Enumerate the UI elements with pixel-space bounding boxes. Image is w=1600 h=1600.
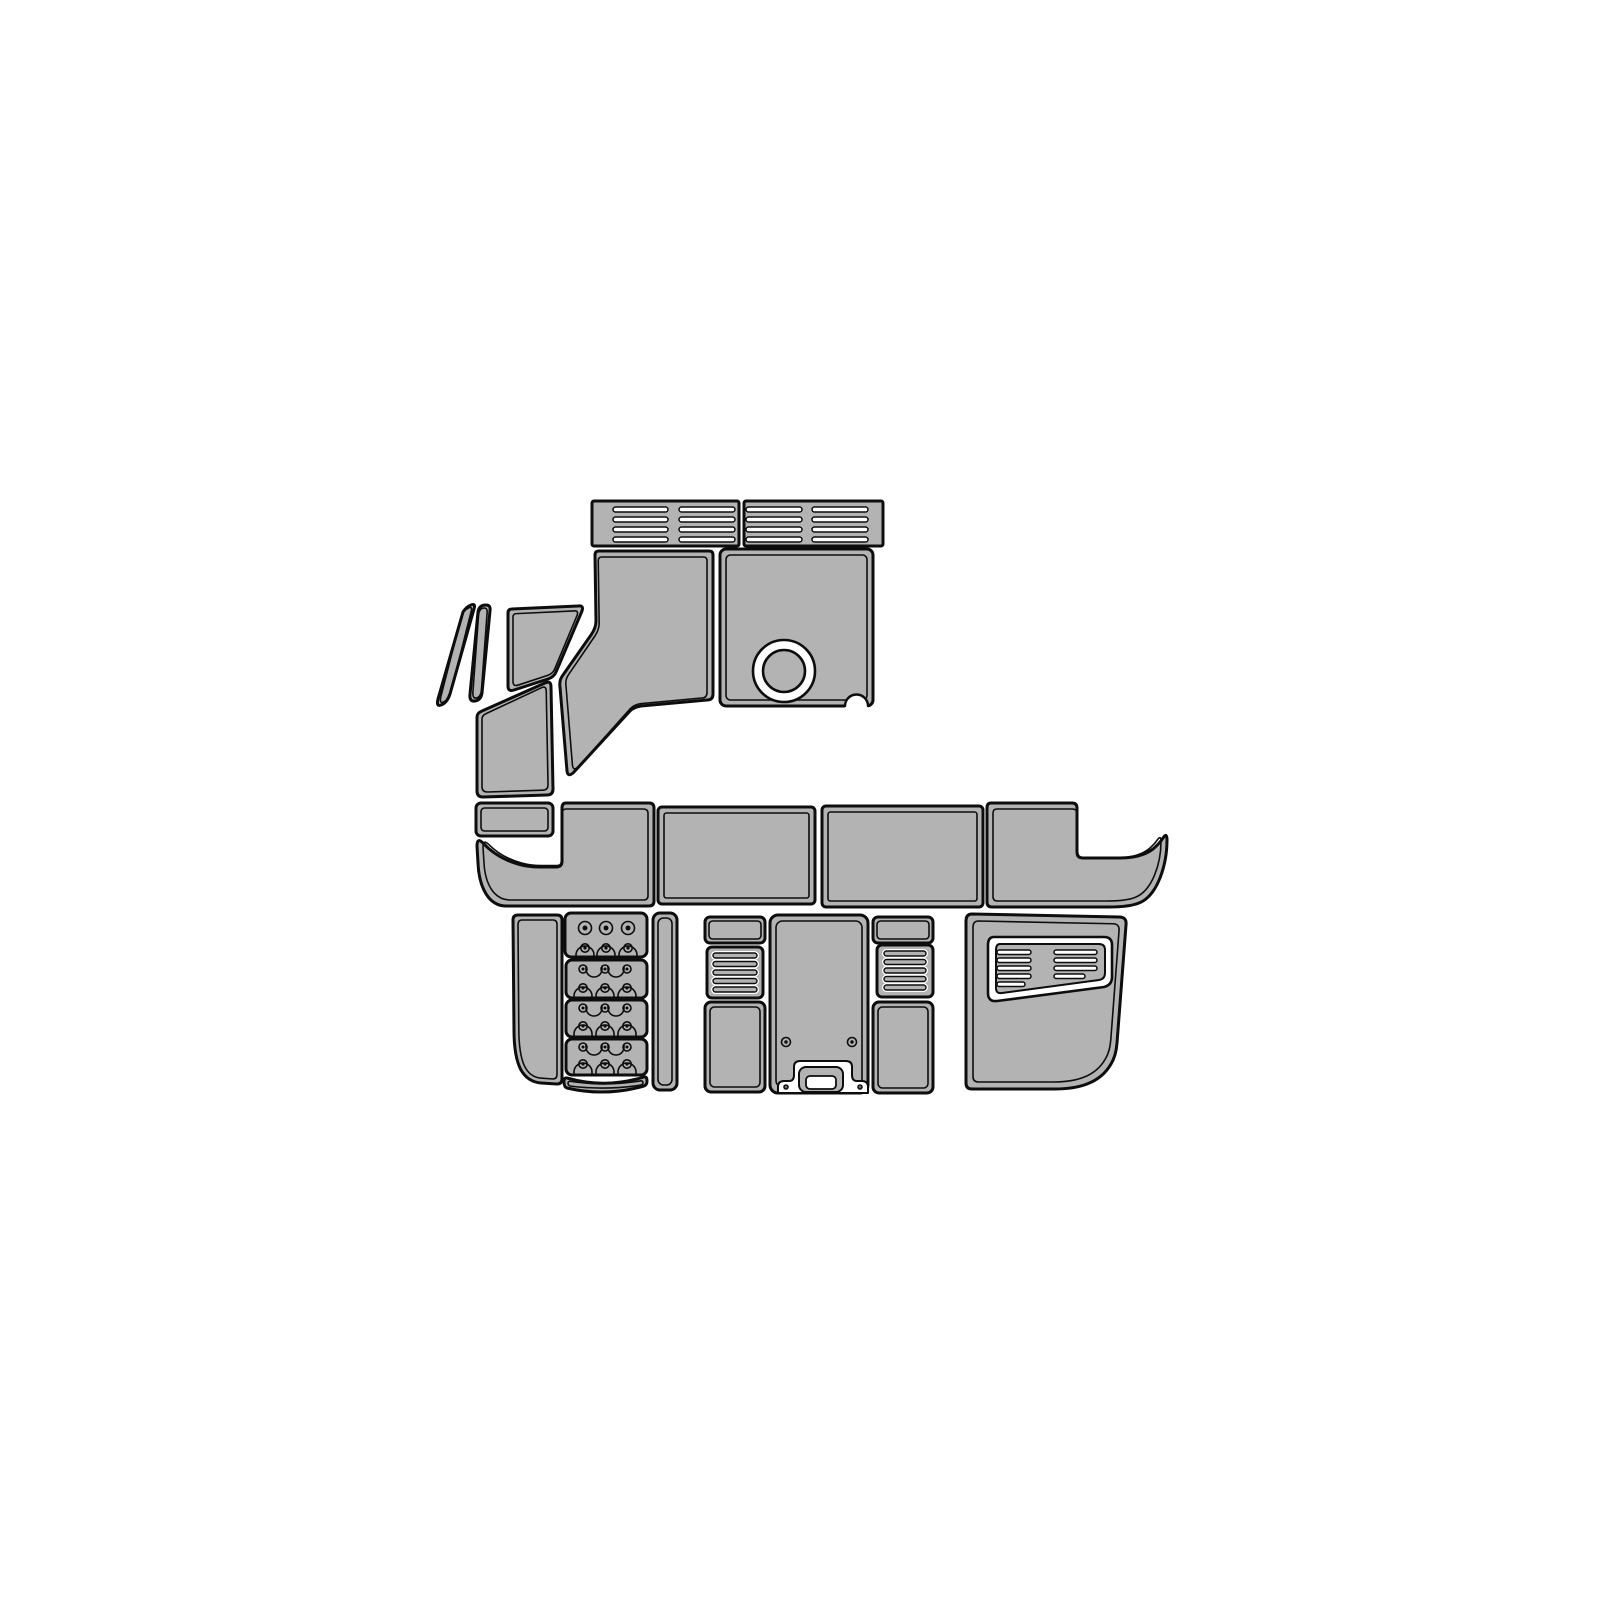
console-side-right-rect-shape bbox=[873, 1002, 933, 1093]
vent-slot bbox=[997, 966, 1031, 971]
piece-bow-right-swoosh bbox=[987, 803, 1167, 907]
vent-slot bbox=[679, 507, 735, 512]
screw-dot bbox=[603, 967, 606, 970]
screw-dot bbox=[785, 1086, 787, 1088]
screw-dot bbox=[626, 926, 631, 931]
vent-slot bbox=[713, 970, 757, 975]
bow-center-right-panel-shape bbox=[822, 806, 983, 907]
screw-dot bbox=[850, 1040, 853, 1043]
screw-dot bbox=[604, 926, 609, 931]
piece-step-pad-2 bbox=[566, 960, 647, 999]
piece-step-pad-1 bbox=[565, 913, 647, 958]
vent-slot bbox=[746, 507, 802, 512]
bow-center-left-panel-shape bbox=[658, 807, 815, 904]
piece-vent-bar-left bbox=[592, 501, 739, 546]
piece-console-center-panel bbox=[770, 915, 868, 1093]
vent-slot bbox=[997, 982, 1025, 987]
vent-slot bbox=[884, 977, 926, 982]
deck-pad-kit-diagram bbox=[0, 0, 1600, 1600]
screw-dot bbox=[625, 1062, 628, 1065]
step-pad-4-shape bbox=[566, 1039, 647, 1075]
screw-dot bbox=[581, 967, 584, 970]
screw-dot bbox=[581, 1062, 584, 1065]
screw-dot bbox=[625, 986, 628, 989]
cup-holder-cutout-insert bbox=[763, 650, 805, 692]
piece-windshield-strip-2 bbox=[470, 605, 490, 701]
screw-dot bbox=[603, 1006, 606, 1009]
screw-dot bbox=[625, 1006, 628, 1009]
vent-slot bbox=[713, 962, 757, 967]
screw-dot bbox=[603, 986, 606, 989]
piece-console-top-left-rect bbox=[705, 917, 765, 943]
piece-bow-center-left-panel bbox=[658, 807, 815, 904]
vent-slot bbox=[812, 517, 868, 522]
vent-slot bbox=[713, 979, 757, 984]
piece-step-arc-strip bbox=[564, 1077, 647, 1092]
vent-slot bbox=[746, 527, 802, 532]
piece-console-vent-left bbox=[707, 947, 763, 998]
screw-dot bbox=[581, 1045, 584, 1048]
piece-helm-left-panel bbox=[560, 551, 713, 775]
vent-slot bbox=[679, 527, 735, 532]
screw-dot bbox=[625, 1024, 628, 1027]
vent-slot bbox=[613, 527, 668, 532]
piece-transom-right-panel bbox=[966, 914, 1126, 1089]
screw-dot bbox=[583, 926, 588, 931]
screw-dot bbox=[625, 1045, 628, 1048]
piece-swim-left-panel bbox=[513, 915, 562, 1084]
console-side-left-rect-shape bbox=[705, 1002, 765, 1092]
piece-console-top-right-rect bbox=[873, 917, 933, 943]
vent-slot bbox=[884, 960, 926, 965]
helm-left-panel-shape bbox=[560, 551, 713, 775]
vent-slot bbox=[884, 968, 926, 973]
screw-dot bbox=[603, 1062, 606, 1065]
vent-slot bbox=[713, 953, 757, 958]
vent-slot bbox=[997, 950, 1031, 955]
vent-slot bbox=[1054, 966, 1097, 971]
screw-dot bbox=[626, 946, 629, 949]
screw-dot bbox=[859, 1086, 861, 1088]
piece-console-side-left-rect bbox=[705, 1002, 765, 1092]
vent-slot bbox=[884, 985, 926, 990]
handle-grip-hole bbox=[806, 1076, 836, 1089]
screw-dot bbox=[603, 1045, 606, 1048]
piece-swim-narrow-strip bbox=[653, 913, 677, 1090]
vent-slot bbox=[997, 974, 1031, 979]
piece-side-step-panel bbox=[477, 682, 553, 797]
piece-step-pad-4 bbox=[566, 1039, 647, 1075]
piece-console-side-right-rect bbox=[873, 1002, 933, 1093]
vent-slot bbox=[812, 527, 868, 532]
vent-slot bbox=[679, 537, 735, 542]
page bbox=[0, 0, 1600, 1600]
vent-slot bbox=[1054, 958, 1097, 963]
screw-dot bbox=[784, 1040, 787, 1043]
piece-vent-bar-right bbox=[744, 501, 883, 546]
piece-step-pad-3 bbox=[566, 1000, 647, 1037]
vent-slot bbox=[812, 507, 868, 512]
piece-helm-right-panel bbox=[720, 549, 873, 709]
screw-dot bbox=[603, 1024, 606, 1027]
swim-left-panel-shape bbox=[513, 915, 562, 1084]
screw-dot bbox=[581, 1006, 584, 1009]
screw-dot bbox=[625, 967, 628, 970]
screw-dot bbox=[604, 946, 607, 949]
piece-bow-center-right-panel bbox=[822, 806, 983, 907]
vent-slot bbox=[746, 517, 802, 522]
vent-slot bbox=[997, 958, 1031, 963]
vent-slot bbox=[613, 537, 668, 542]
vent-slot bbox=[679, 517, 735, 522]
screw-dot bbox=[583, 946, 586, 949]
vent-slot bbox=[713, 987, 757, 992]
vent-slot bbox=[812, 537, 868, 542]
vent-slot bbox=[613, 517, 668, 522]
swim-narrow-strip-shape bbox=[653, 913, 677, 1090]
piece-console-vent-right bbox=[877, 945, 933, 997]
screw-dot bbox=[581, 1024, 584, 1027]
vent-slot bbox=[1054, 974, 1085, 979]
screw-dot bbox=[581, 986, 584, 989]
vent-slot bbox=[613, 507, 668, 512]
piece-gunnel-step-rect bbox=[476, 803, 553, 836]
vent-slot bbox=[1054, 950, 1097, 955]
vent-slot bbox=[746, 537, 802, 542]
vent-slot bbox=[884, 951, 926, 956]
